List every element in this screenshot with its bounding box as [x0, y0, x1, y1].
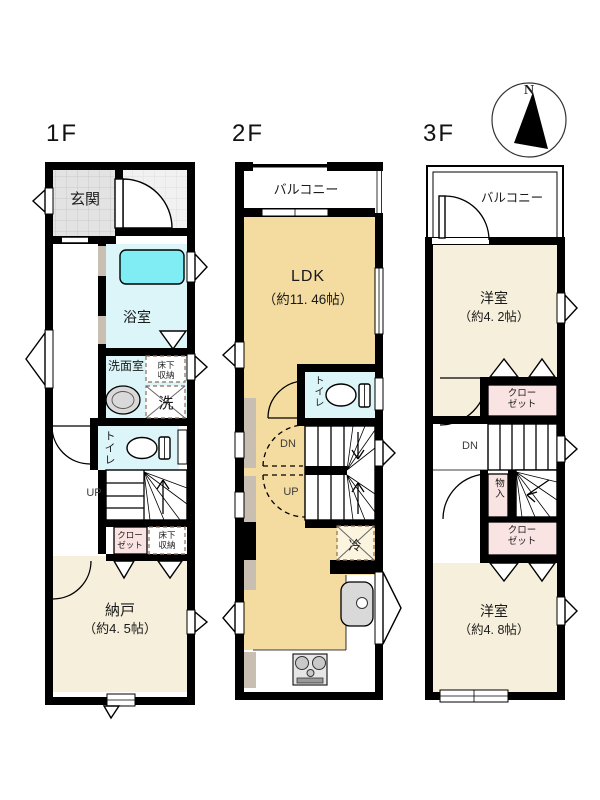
window-marker-icon	[26, 333, 45, 385]
underfloor-storage-top-label: 床下 収納	[157, 360, 174, 380]
window-marker-icon	[383, 441, 395, 465]
washroom-sink	[106, 386, 140, 414]
bedroom-bottom-size-label: （約4. 8帖）	[459, 619, 530, 638]
balcony-rail-2f	[377, 167, 382, 213]
window-marker-icon	[195, 612, 207, 632]
floor-2f-title: 2F	[232, 120, 264, 148]
window-marker-icon	[33, 190, 45, 212]
ldk-size-label: （約11. 46帖）	[263, 288, 354, 308]
kitchen-sink	[341, 582, 373, 626]
bathtub	[120, 250, 184, 284]
laundry-label: 洗	[158, 392, 173, 413]
bedroom-top-size-label: （約4. 2帖）	[459, 306, 530, 325]
underfloor-storage-bottom-label: 床下 収納	[158, 530, 175, 550]
stairs-1f	[106, 470, 187, 520]
refrigerator-label: 冷	[348, 535, 361, 554]
window-marker-icon	[565, 438, 577, 460]
balcony-window-2f	[262, 209, 328, 216]
stairs-up-label-1f: UP	[86, 487, 101, 499]
closet-top-label-3f: クロー ゼット	[508, 388, 537, 410]
closet-bottom-label-3f: クロー ゼット	[508, 525, 537, 547]
ldk-name-label: LDK	[291, 268, 325, 286]
window-marker-icon	[195, 254, 207, 280]
toilet-fixture-2f	[326, 384, 370, 407]
washroom-label: 洗面室	[108, 357, 144, 374]
floor-1f-title: 1F	[46, 120, 78, 148]
stairs-up-label-2f: UP	[283, 486, 298, 498]
entrance-label: 玄関	[70, 188, 100, 209]
entry-step-icon	[104, 706, 119, 718]
stairs-down-label-2f: DN	[280, 438, 296, 450]
storage-label-3f: 物入	[491, 478, 505, 499]
floor-plan-2f	[215, 155, 410, 710]
balcony-label-2f: バルコニー	[274, 179, 339, 198]
bedroom-bottom-name-label: 洋室	[480, 601, 508, 621]
stairs-down-label-3f: DN	[462, 440, 478, 452]
floor-3f-title: 3F	[423, 120, 455, 148]
entrance-door-leaf	[115, 179, 123, 228]
balcony-label-3f: バルコニー	[481, 187, 543, 206]
closet-label-1f: クロー ゼット	[117, 530, 143, 550]
stove	[293, 654, 327, 685]
window-marker-icon	[565, 295, 577, 321]
bedroom-top-name-label: 洋室	[480, 288, 508, 308]
toilet-label-2f: トイレ	[310, 375, 325, 408]
storeroom-name-label: 納戸	[105, 599, 135, 620]
window-marker-icon	[223, 344, 235, 366]
bathroom-label: 浴室	[123, 307, 151, 327]
toilet-label-1f: トイレ	[101, 430, 117, 466]
storeroom-size-label: （約4. 5帖）	[83, 618, 157, 637]
window-marker-icon	[195, 356, 207, 378]
floor-plan-canvas: 1F 2F 3F N	[0, 0, 600, 800]
window-marker-icon	[565, 599, 577, 623]
window-marker-icon	[223, 604, 235, 632]
toilet-fixture-1f	[127, 437, 170, 459]
window-marker-icon	[383, 572, 401, 644]
compass-north-label: N	[524, 83, 534, 99]
